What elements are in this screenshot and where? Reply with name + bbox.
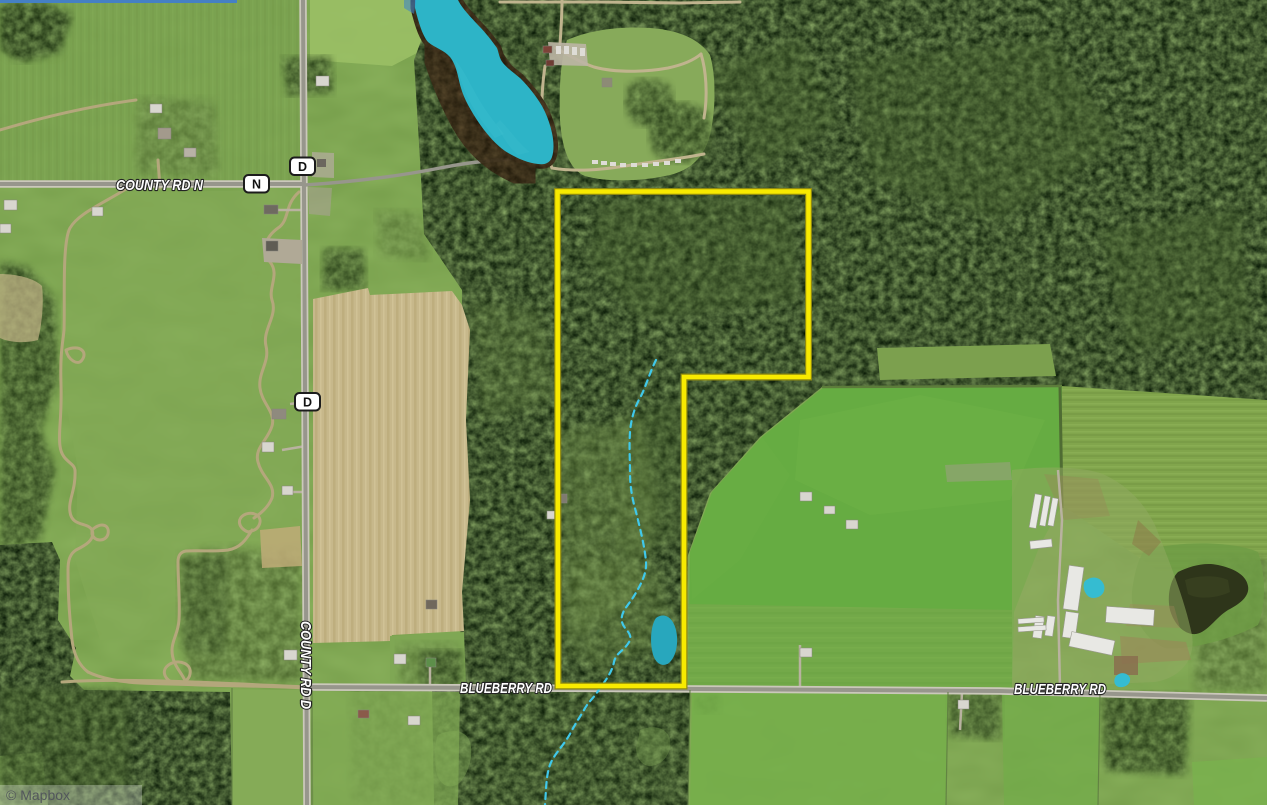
svg-text:COUNTY RD N: COUNTY RD N — [116, 178, 203, 194]
svg-text:D: D — [303, 396, 312, 410]
svg-text:COUNTY RD D: COUNTY RD D — [297, 621, 313, 709]
svg-text:BLUEBERRY RD: BLUEBERRY RD — [460, 681, 552, 697]
svg-text:© Mapbox: © Mapbox — [6, 787, 70, 803]
svg-text:D: D — [298, 160, 307, 174]
svg-text:BLUEBERRY RD: BLUEBERRY RD — [1014, 682, 1106, 698]
svg-text:N: N — [252, 178, 261, 192]
